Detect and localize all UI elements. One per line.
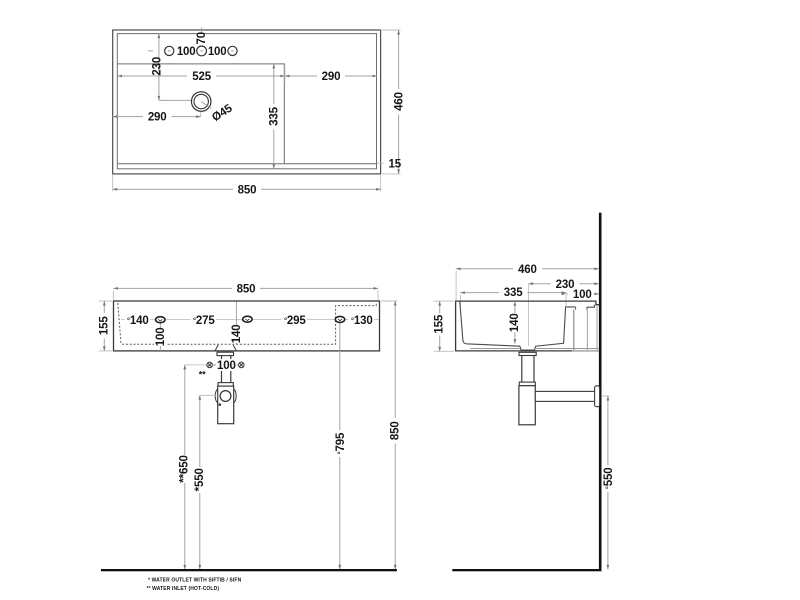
svg-text:* WATER OUTLET WITH SIFTIB /: * WATER OUTLET WITH SIFTIB / SIFN bbox=[148, 577, 242, 583]
svg-text:100: 100 bbox=[155, 328, 167, 347]
svg-text:140: 140 bbox=[509, 313, 521, 332]
svg-text:460: 460 bbox=[393, 92, 405, 111]
svg-text:°130: °130 bbox=[351, 315, 373, 327]
svg-text:290: 290 bbox=[148, 112, 167, 124]
svg-text:335: 335 bbox=[504, 287, 523, 299]
svg-text:850: 850 bbox=[237, 284, 256, 296]
svg-text:460: 460 bbox=[518, 264, 537, 276]
svg-text:335: 335 bbox=[268, 106, 280, 125]
svg-text:100: 100 bbox=[177, 46, 196, 58]
svg-text:230: 230 bbox=[152, 57, 164, 76]
svg-text:100: 100 bbox=[208, 46, 227, 58]
svg-text:**650: **650 bbox=[179, 455, 191, 482]
svg-text:850: 850 bbox=[389, 421, 401, 440]
svg-text:°140: °140 bbox=[127, 315, 149, 327]
svg-text:Ø45: Ø45 bbox=[210, 102, 235, 124]
svg-text:15: 15 bbox=[389, 158, 402, 170]
svg-text:°550: °550 bbox=[603, 467, 615, 489]
svg-text:100: 100 bbox=[217, 360, 236, 372]
svg-text:230: 230 bbox=[556, 279, 575, 291]
svg-text:155: 155 bbox=[98, 316, 110, 335]
svg-text:*550: *550 bbox=[194, 468, 206, 491]
svg-text:290: 290 bbox=[322, 71, 341, 83]
svg-text:70: 70 bbox=[196, 32, 208, 45]
svg-text:°295: °295 bbox=[284, 315, 306, 327]
svg-text:850: 850 bbox=[238, 184, 257, 196]
svg-text:100: 100 bbox=[573, 289, 592, 301]
svg-text:155: 155 bbox=[434, 314, 446, 333]
svg-text:**: ** bbox=[199, 369, 206, 379]
svg-text:** WATER INLET (HOT-COLD): ** WATER INLET (HOT-COLD) bbox=[147, 586, 220, 592]
svg-text:°275: °275 bbox=[193, 315, 215, 327]
svg-text:°795: °795 bbox=[335, 432, 347, 454]
svg-text:140: 140 bbox=[231, 325, 243, 344]
svg-text:525: 525 bbox=[192, 71, 211, 83]
